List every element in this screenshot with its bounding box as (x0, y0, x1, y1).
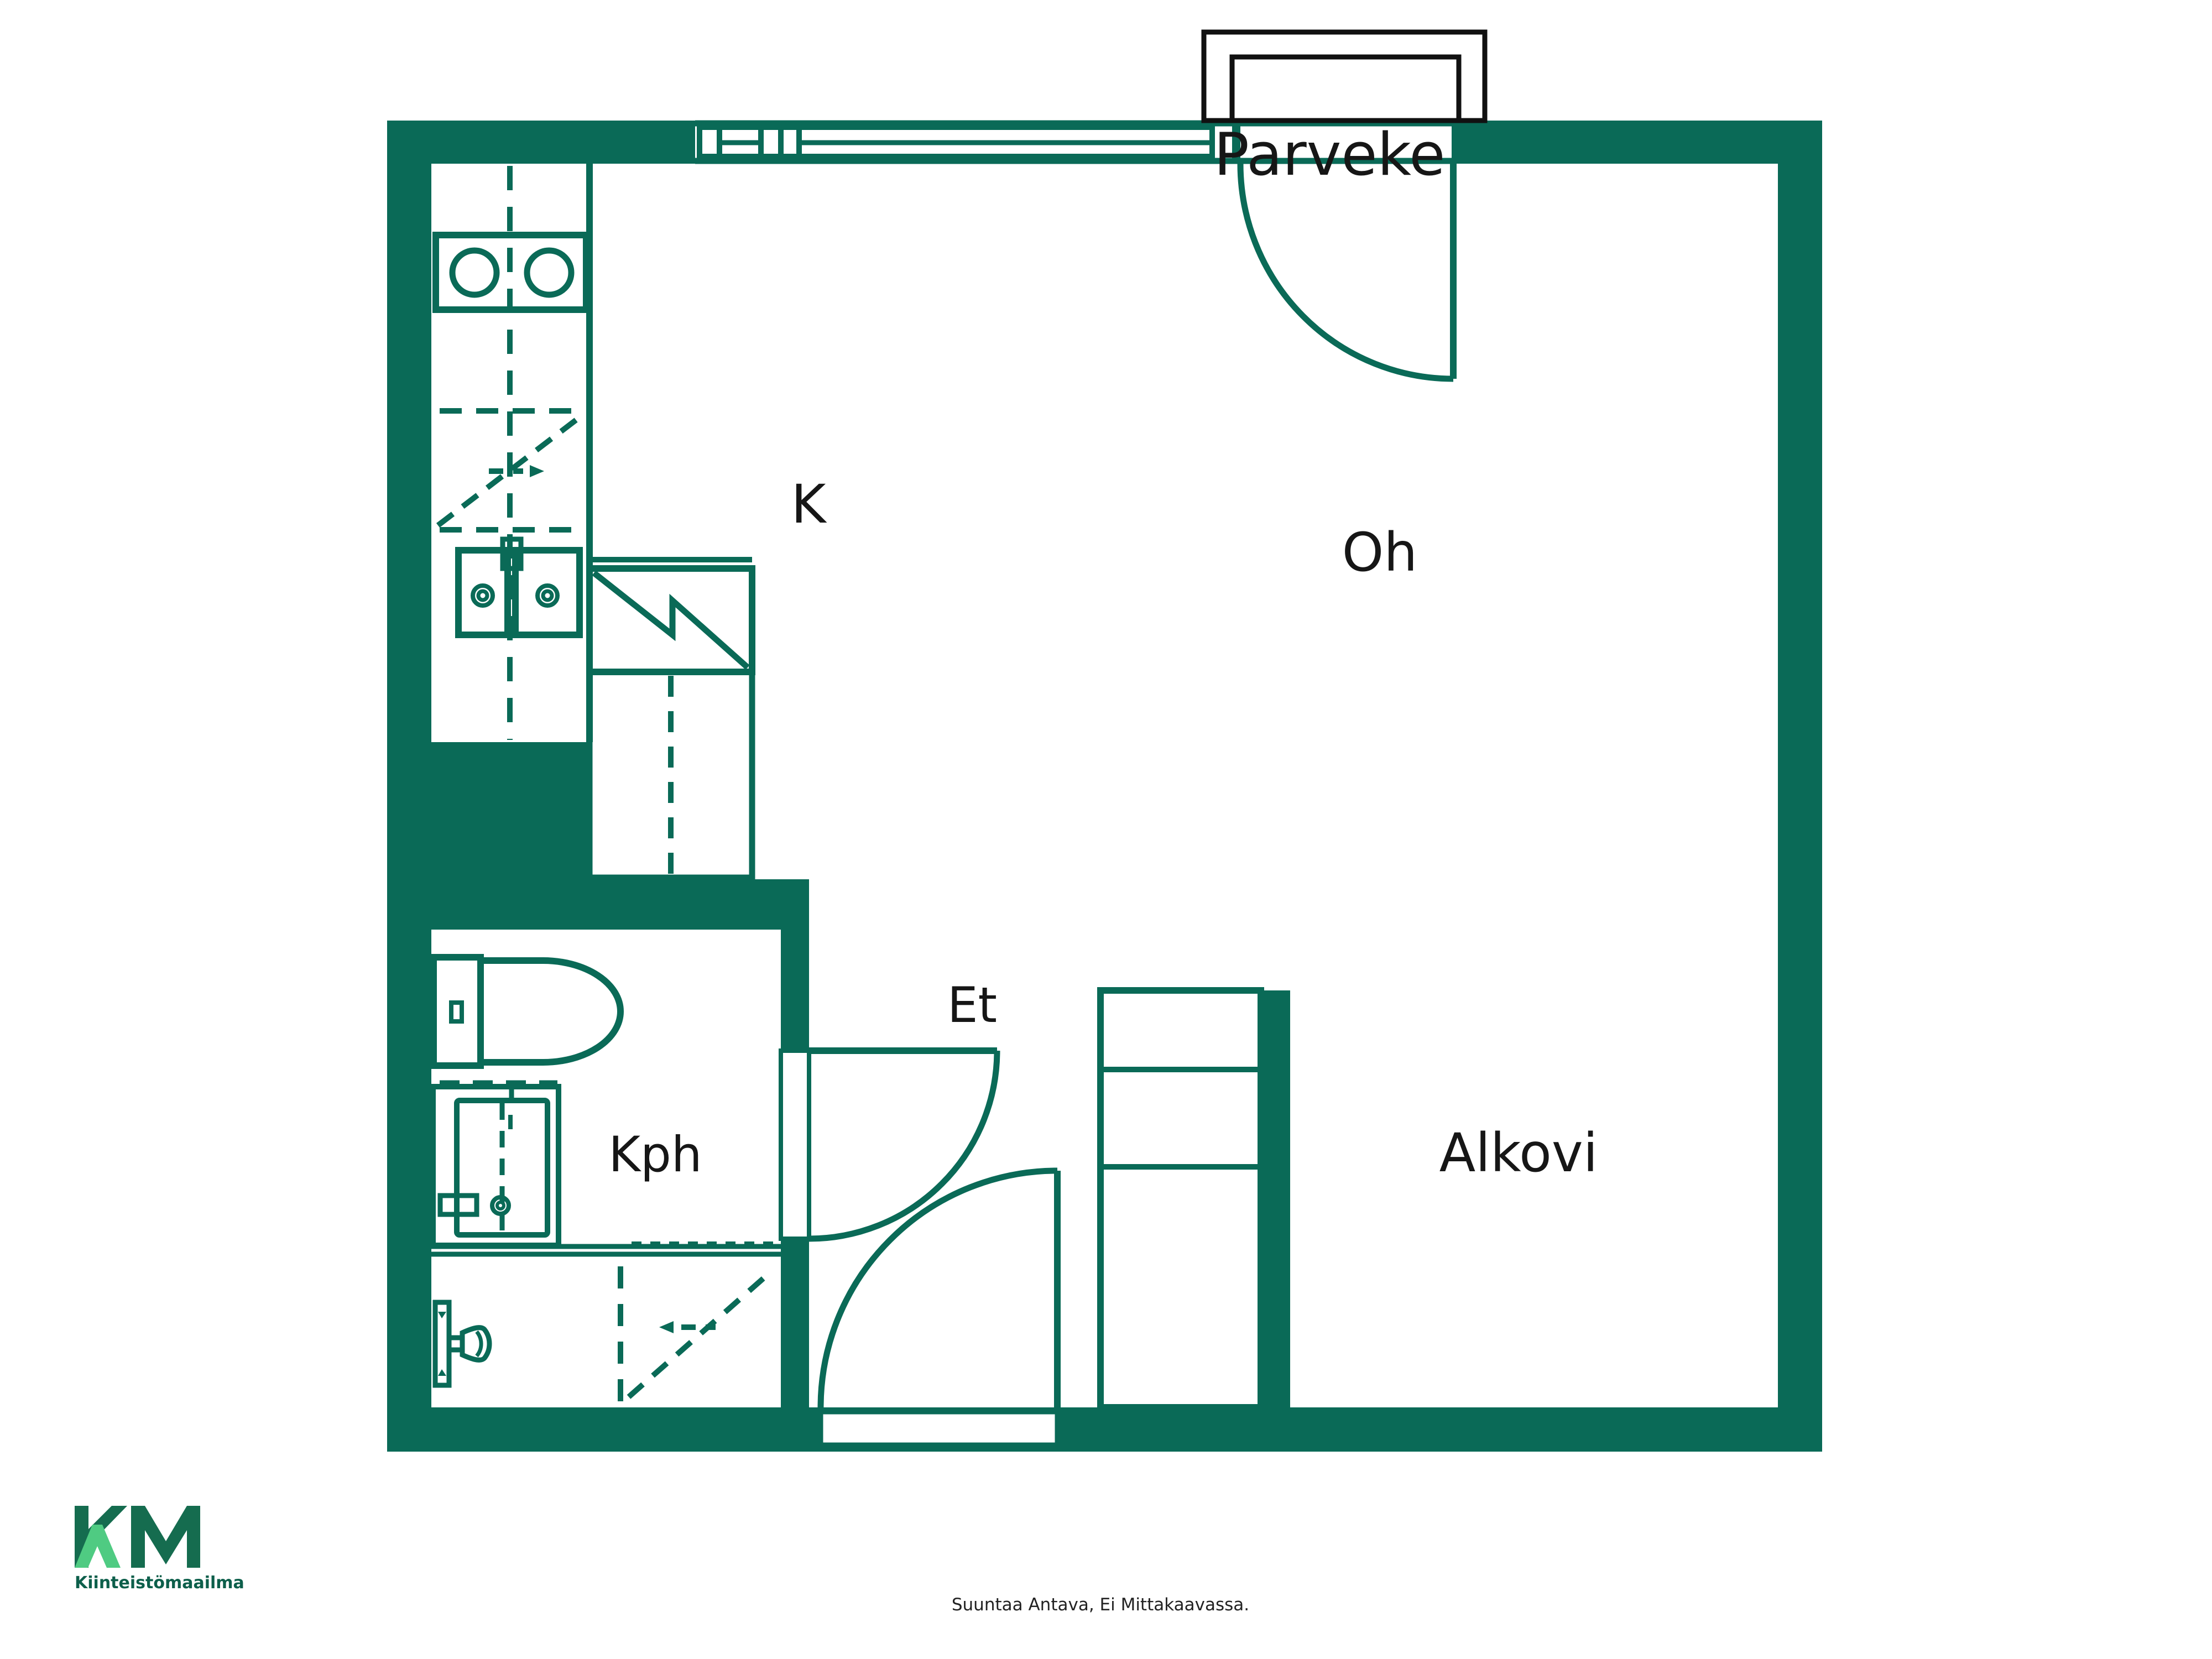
bathroom-sink (433, 1083, 559, 1245)
balcony-outline-outer (1204, 32, 1485, 121)
bathroom-door (809, 1051, 997, 1239)
wall-bottom (387, 1407, 1822, 1452)
sink-drain (543, 591, 552, 600)
wall-block-under-counter (431, 742, 589, 880)
label-alcove: Alkovi (1439, 1122, 1598, 1184)
sink-drain (538, 586, 557, 606)
balcony (1204, 32, 1485, 121)
bathroom (431, 957, 997, 1405)
label-entrance: Et (947, 977, 997, 1034)
shower-rail-mark (438, 1312, 446, 1318)
wall-bathroom-top (387, 879, 809, 930)
fridge-lightning-icon (594, 573, 748, 667)
balcony-outline-inner (1232, 57, 1459, 121)
closet (1100, 990, 1261, 1407)
toilet-tank (434, 957, 481, 1066)
toilet-flush-button (451, 1003, 462, 1021)
wall-stub-bathroom-lower (781, 1239, 809, 1407)
wall-top-right (1452, 121, 1822, 164)
label-balcony: Parveke (1214, 121, 1445, 189)
shower-rail-mark (438, 1369, 446, 1376)
label-kitchen: K (791, 473, 827, 535)
wall-left (387, 121, 431, 1452)
toilet (434, 957, 620, 1066)
wall-stub-bathroom-upper (781, 930, 809, 1051)
front-door (821, 1171, 1057, 1445)
floor-plan-canvas: Parveke K Oh Et Kph Alkovi Kiinteistömaa… (0, 0, 2212, 1659)
bathroom-door-opening (781, 1051, 809, 1239)
kitchen-sink (458, 539, 580, 635)
wall-closet-column (1261, 990, 1290, 1407)
bathroom-divider (431, 1244, 781, 1254)
km-logo: Kiinteistömaailma (75, 1506, 244, 1593)
brand-text: Kiinteistömaailma (75, 1573, 244, 1593)
label-bathroom: Kph (608, 1126, 702, 1183)
wall-right (1778, 121, 1822, 1452)
appliance-reservation (620, 1266, 772, 1405)
wall-top-left (387, 121, 695, 164)
sink-counter (433, 1087, 559, 1245)
shower (435, 1302, 489, 1385)
floor-plan-page: Parveke K Oh Et Kph Alkovi Kiinteistömaa… (0, 0, 2212, 1659)
front-door-threshold (821, 1412, 1057, 1445)
front-door-swing-arc (821, 1171, 1057, 1407)
balcony-door-swing-arc (1240, 164, 1453, 379)
stove-burner (527, 251, 571, 295)
km-logo-icon (75, 1506, 200, 1568)
tall-cabinet (589, 672, 752, 878)
sink-drain (497, 1202, 504, 1209)
disclaimer-text: Suuntaa Antava, Ei Mittakaavassa. (952, 1595, 1249, 1615)
direction-arrow-icon (659, 1321, 674, 1333)
direction-arrow-icon (530, 465, 544, 477)
toilet-bowl (482, 961, 620, 1062)
sink-drain (473, 586, 493, 606)
bathroom-door-swing-arc (809, 1051, 997, 1239)
kitchen-counter (436, 164, 589, 742)
closet-body (1100, 990, 1261, 1407)
label-living-room: Oh (1342, 521, 1417, 583)
balcony-door (1240, 164, 1453, 379)
shower-head-inner (477, 1332, 481, 1356)
sink-drain (478, 591, 487, 600)
stove-burner (452, 251, 497, 295)
fridge-cabinet (589, 560, 752, 878)
